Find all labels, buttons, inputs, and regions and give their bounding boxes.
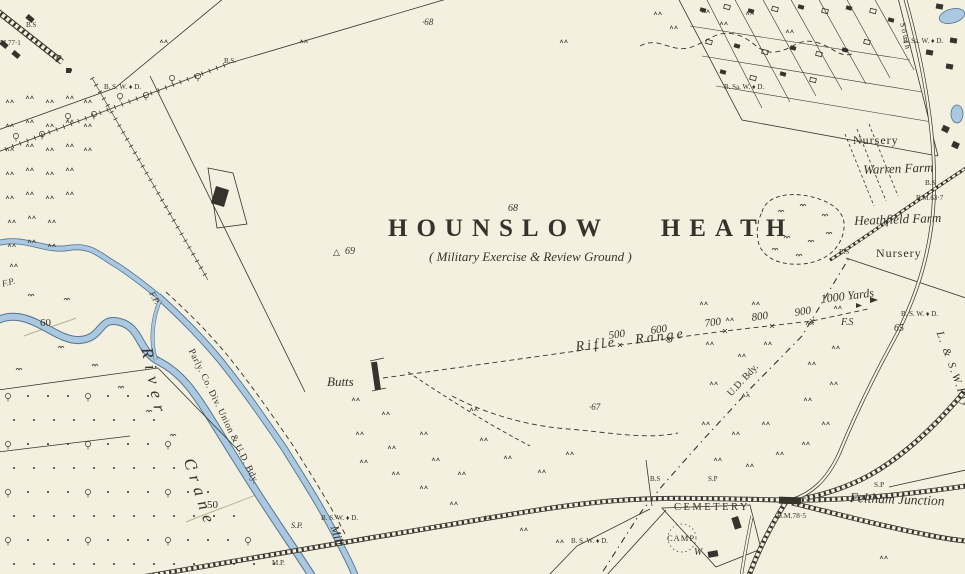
contour-60: 60 — [40, 318, 51, 329]
spot-height-67: ·67 — [589, 403, 600, 412]
buildings — [0, 3, 960, 557]
bench-mark-65: 65 — [894, 324, 904, 334]
signal-post-junction: S.P — [874, 481, 884, 489]
boundary-and-range-dashes — [166, 33, 898, 574]
mile-post-west: M.P. — [272, 560, 285, 567]
bs-heathfield: B.S — [839, 249, 849, 256]
bench-mark-78-5: B.M.78·5 — [777, 512, 806, 520]
range-800: 800 — [751, 311, 769, 324]
boundary-stone-allotments: B. Sa. W. ♦ D. — [724, 84, 764, 91]
map-title: HOUNSLOW HEATH — [388, 216, 794, 241]
boundary-stone-range: B. S. W. ♦ D. — [901, 311, 938, 318]
butts-label: Butts — [327, 375, 354, 388]
ud-boundary — [600, 258, 849, 574]
map-linework — [0, 0, 965, 574]
cemetery-chapel — [731, 516, 741, 530]
trig-station-icon: △ — [333, 248, 340, 257]
boundary-stone-west: B. S. W. ♦ D. — [321, 515, 358, 522]
warren-farm-label: Warren Farm — [863, 161, 934, 176]
boundary-stone-avenue: B. S. W. ♦ D. — [104, 84, 141, 91]
nursery-east-label: Nursery — [876, 247, 922, 259]
range-500: 500 — [608, 329, 626, 342]
signal-post-west: S.P. — [291, 522, 303, 530]
nursery-north-label: Nursery — [853, 134, 899, 146]
junction-building — [779, 497, 801, 505]
boundary-stone-camp: B. S. W. ♦ D. — [571, 538, 608, 545]
range-900: 900 — [794, 306, 812, 319]
pump-symbol — [68, 68, 72, 72]
camp-label: CAMP — [667, 534, 695, 543]
heathfield-farm-label: Heathfield Farm — [854, 211, 941, 227]
flagstaff-label: F.S — [841, 318, 853, 328]
pond — [951, 105, 963, 123]
map-canvas[interactable]: HOUNSLOW HEATH 68 ( Military Exercise & … — [0, 0, 965, 574]
bench-mark-77-1: M.77·1 — [0, 40, 21, 47]
range-700: 700 — [704, 317, 722, 330]
range-600: 600 — [650, 324, 668, 337]
bs-avenue: B.S. — [224, 58, 236, 65]
bs-rail: B.S — [650, 476, 660, 483]
spot-height-68: ·68 — [422, 18, 433, 27]
butts-structure — [374, 362, 378, 390]
bs-warren: B.S — [925, 180, 935, 187]
contour-50: 50 — [207, 500, 218, 511]
map-subtitle: ( Military Exercise & Review Ground ) — [429, 250, 632, 263]
title-altitude: 68 — [508, 204, 518, 214]
bs-northwest: B.S — [26, 22, 36, 29]
trig-height-69: 69 — [345, 247, 355, 257]
well-building — [708, 550, 719, 558]
cemetery-label: CEMETERY — [674, 503, 750, 514]
vegetation-symbols — [5, 10, 887, 565]
river-crane — [0, 6, 965, 574]
bench-mark-63-7: B.M.63·7 — [916, 195, 943, 202]
feltham-junction-label: Feltham Junction — [850, 491, 945, 508]
well-label: W — [694, 548, 702, 558]
pump-label: P — [55, 54, 62, 65]
signal-post-rail: S.P — [708, 476, 718, 483]
